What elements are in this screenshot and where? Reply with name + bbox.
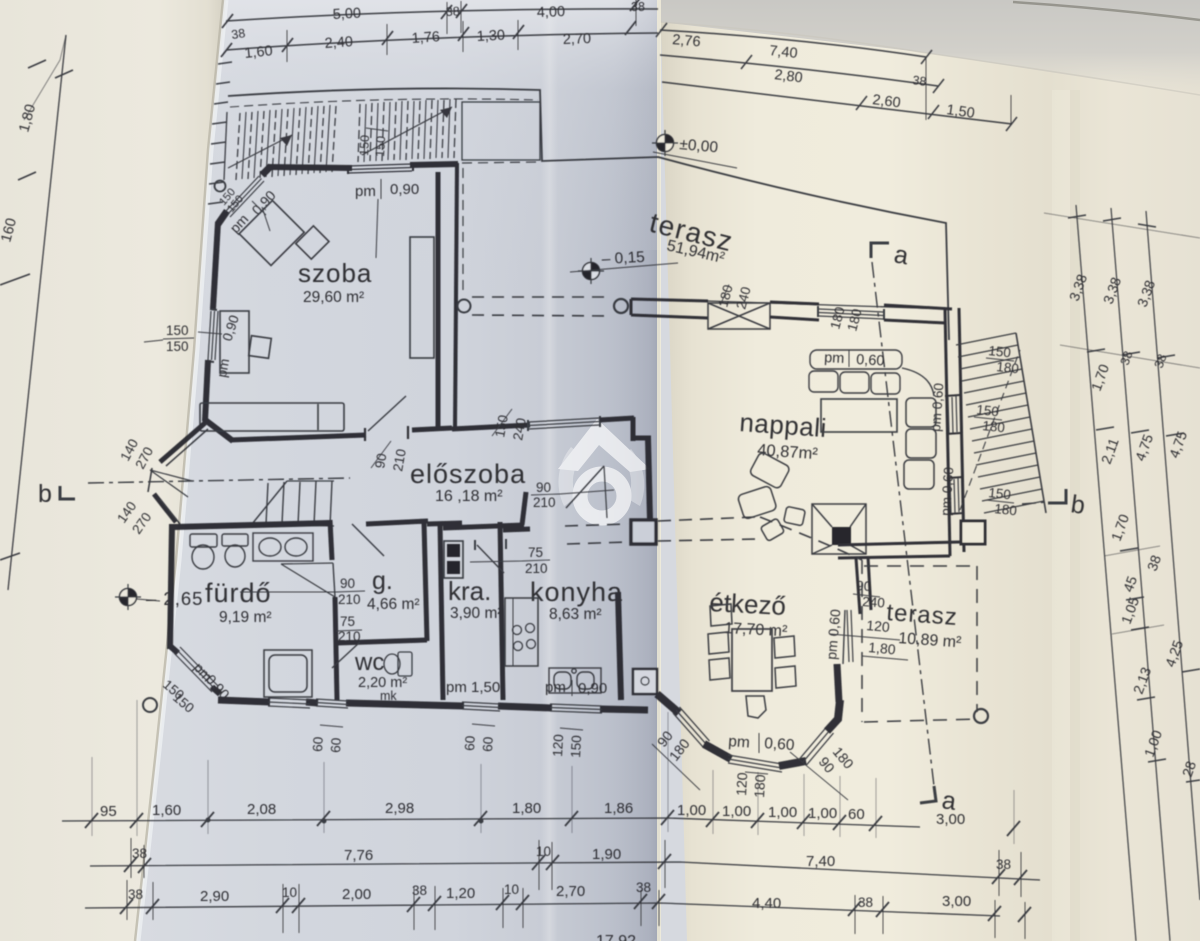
- svg-text:– 2,65: – 2,65: [146, 588, 203, 609]
- svg-text:38: 38: [412, 883, 427, 898]
- svg-text:g.: g.: [372, 567, 393, 595]
- svg-text:120: 120: [733, 772, 750, 796]
- svg-text:38: 38: [912, 73, 928, 89]
- svg-text:étkező: étkező: [709, 587, 787, 621]
- svg-text:2,40: 2,40: [324, 34, 353, 52]
- svg-text:8,63 m²: 8,63 m²: [549, 606, 602, 623]
- svg-text:1,20: 1,20: [446, 885, 475, 902]
- svg-text:3,00: 3,00: [942, 893, 971, 910]
- svg-text:1,60: 1,60: [152, 802, 181, 819]
- svg-text:150: 150: [568, 735, 584, 758]
- svg-text:2,70: 2,70: [556, 883, 585, 900]
- svg-text:95: 95: [100, 803, 117, 820]
- svg-text:b: b: [38, 480, 52, 508]
- svg-text:1,00: 1,00: [722, 803, 751, 820]
- svg-text:60: 60: [328, 737, 344, 753]
- svg-text:180: 180: [982, 418, 1006, 435]
- svg-text:150: 150: [166, 339, 189, 354]
- svg-text:3,90 m²: 3,90 m²: [450, 605, 503, 622]
- svg-text:38: 38: [631, 0, 645, 14]
- svg-text:1,76: 1,76: [411, 29, 440, 47]
- svg-text:2,98: 2,98: [385, 800, 414, 817]
- svg-text:2,80: 2,80: [774, 67, 804, 86]
- svg-text:9,19 m²: 9,19 m²: [219, 609, 272, 626]
- svg-text:75: 75: [528, 545, 543, 560]
- svg-text:17,92: 17,92: [596, 933, 636, 941]
- svg-text:1,00: 1,00: [808, 805, 837, 822]
- svg-text:180: 180: [994, 501, 1018, 518]
- svg-text:38: 38: [636, 880, 651, 895]
- svg-text:fürdő: fürdő: [205, 578, 272, 608]
- svg-text:150: 150: [166, 323, 189, 338]
- svg-text:1,80: 1,80: [868, 639, 897, 657]
- svg-text:16 ,18 m²: 16 ,18 m²: [435, 488, 503, 505]
- svg-text:38: 38: [858, 895, 873, 910]
- svg-text:2,08: 2,08: [247, 801, 276, 818]
- svg-text:150: 150: [988, 485, 1012, 502]
- svg-text:0,60: 0,60: [764, 735, 796, 754]
- svg-text:pm: pm: [355, 183, 376, 200]
- svg-text:wc: wc: [354, 649, 384, 676]
- svg-text:1,86: 1,86: [604, 800, 633, 817]
- svg-text:1,80: 1,80: [512, 800, 541, 817]
- svg-text:3,00: 3,00: [936, 811, 965, 828]
- svg-text:38: 38: [128, 887, 143, 902]
- svg-text:pm 1,50: pm 1,50: [446, 679, 500, 696]
- svg-text:1,00: 1,00: [677, 802, 706, 819]
- svg-text:210: 210: [338, 592, 361, 607]
- svg-text:120: 120: [550, 734, 566, 757]
- svg-text:10: 10: [282, 885, 297, 900]
- svg-text:5,00: 5,00: [332, 6, 361, 23]
- svg-text:1,90: 1,90: [592, 846, 621, 863]
- svg-text:60: 60: [480, 736, 496, 752]
- svg-text:– 0,15: – 0,15: [601, 249, 645, 268]
- svg-text:nappali: nappali: [739, 407, 828, 443]
- svg-text:1,00: 1,00: [768, 804, 797, 821]
- svg-text:38: 38: [230, 26, 246, 42]
- svg-text:terasz: terasz: [886, 599, 959, 631]
- svg-text:4,40: 4,40: [752, 895, 781, 912]
- svg-text:konyha: konyha: [530, 577, 623, 607]
- svg-text:7,40: 7,40: [769, 43, 799, 62]
- svg-text:10: 10: [504, 882, 519, 897]
- svg-text:60: 60: [462, 735, 478, 751]
- svg-text:4,00: 4,00: [537, 4, 566, 21]
- svg-text:90: 90: [856, 578, 872, 594]
- svg-text:180: 180: [751, 774, 768, 798]
- svg-text:pm: pm: [824, 350, 845, 367]
- svg-text:előszoba: előszoba: [410, 459, 526, 489]
- svg-text:0,90: 0,90: [390, 181, 419, 198]
- svg-text:4,66 m²: 4,66 m²: [367, 596, 420, 613]
- svg-text:7,76: 7,76: [344, 847, 373, 864]
- svg-text:0,60: 0,60: [856, 352, 885, 369]
- svg-text:1,60: 1,60: [244, 43, 274, 62]
- svg-text:7,40: 7,40: [806, 853, 835, 870]
- svg-text:0,90: 0,90: [578, 680, 607, 697]
- svg-text:29,60 m²: 29,60 m²: [303, 289, 364, 306]
- svg-text:1,30: 1,30: [476, 28, 505, 45]
- svg-text:szoba: szoba: [298, 258, 372, 288]
- svg-text:2,76: 2,76: [672, 32, 702, 50]
- svg-text:10: 10: [536, 844, 551, 859]
- svg-text:90: 90: [340, 576, 355, 591]
- svg-text:150: 150: [988, 343, 1012, 360]
- svg-text:150: 150: [373, 136, 388, 158]
- svg-text:2,60: 2,60: [872, 92, 902, 111]
- svg-text:38: 38: [996, 857, 1011, 872]
- svg-text:kra.: kra.: [448, 576, 491, 606]
- svg-text:pm: pm: [545, 679, 566, 696]
- svg-text:60: 60: [848, 806, 865, 823]
- svg-text:2,00: 2,00: [342, 886, 371, 903]
- svg-text:2,70: 2,70: [563, 31, 592, 48]
- svg-text:pm: pm: [728, 733, 751, 751]
- svg-text:210: 210: [533, 495, 556, 510]
- svg-text:150: 150: [357, 135, 372, 157]
- svg-text:pm: pm: [214, 357, 232, 378]
- svg-text:38: 38: [132, 846, 147, 861]
- svg-text:180: 180: [996, 359, 1020, 376]
- svg-text:210: 210: [525, 561, 548, 576]
- svg-text:150: 150: [976, 402, 1000, 419]
- svg-text:60: 60: [310, 736, 326, 752]
- svg-text:38: 38: [445, 4, 460, 19]
- svg-text:2,90: 2,90: [200, 888, 229, 905]
- svg-text:±0,00: ±0,00: [679, 136, 719, 156]
- svg-text:90: 90: [536, 480, 551, 495]
- svg-text:75: 75: [340, 614, 355, 629]
